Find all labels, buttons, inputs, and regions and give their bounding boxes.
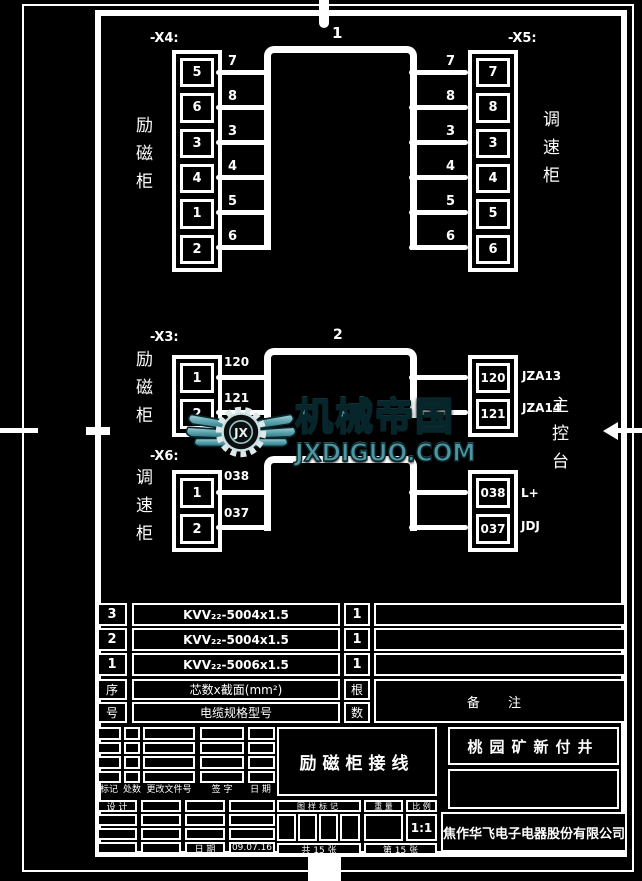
terminal-tag: JZA14 xyxy=(522,402,561,414)
center-mark-right-outer xyxy=(616,428,642,433)
signature-cell xyxy=(229,828,275,840)
wire-stub xyxy=(409,245,468,250)
signature-cell xyxy=(97,842,137,854)
signature-cell xyxy=(141,800,181,812)
table-header-spec: 芯数x截面(mm²) xyxy=(132,679,340,700)
mark-cell xyxy=(340,814,360,841)
revision-cell xyxy=(248,771,275,784)
console-bottom-terminal-block: 038 037 xyxy=(468,470,518,552)
table-cell-remark xyxy=(374,653,626,676)
scale-header: 比 例 xyxy=(406,800,437,812)
table-cell-spec: KVV₂₂-5006x1.5 xyxy=(132,653,340,676)
wire-number: 3 xyxy=(446,125,455,138)
table-header-qty-top: 根 xyxy=(344,679,370,700)
sheet-number: 第 15 张 xyxy=(364,843,437,855)
wire-stub xyxy=(216,375,268,380)
revision-cell xyxy=(143,742,195,755)
revision-label-count: 处数 xyxy=(121,786,143,795)
wire-number: 8 xyxy=(228,90,237,103)
wire-stub xyxy=(216,210,268,215)
wire-number: 8 xyxy=(446,90,455,103)
wire-stub xyxy=(216,140,268,145)
x6-terminal-block: 1 2 xyxy=(172,470,222,552)
right-cabinet-label: 调速柜 xyxy=(540,110,557,194)
center-mark-left-inner xyxy=(86,427,110,435)
table-header-serial-top: 序 xyxy=(97,679,127,700)
watermark-brand-text: 机械帝国 xyxy=(295,398,455,436)
x4-terminal-block: 5 6 3 4 1 2 xyxy=(172,50,222,272)
wire-number: 037 xyxy=(224,507,249,519)
table-cell-qty: 1 xyxy=(344,653,370,676)
signature-cell xyxy=(141,828,181,840)
revision-cell xyxy=(143,727,195,740)
table-cell-qty: 1 xyxy=(344,603,370,626)
signature-cell xyxy=(185,800,225,812)
revision-column xyxy=(143,727,195,783)
revision-cell xyxy=(97,727,121,740)
wire-stub xyxy=(216,175,268,180)
signature-cell-design: 设 计 xyxy=(97,800,137,812)
x5-terminal-label: -X5: xyxy=(508,32,537,45)
wire-stub xyxy=(216,525,268,530)
terminal-cell: 1 xyxy=(180,199,214,228)
x3-terminal-label: -X3: xyxy=(150,331,179,344)
terminal-tag: L+ xyxy=(521,487,539,499)
cable-bundle-1 xyxy=(264,46,417,250)
wire-stub xyxy=(216,105,268,110)
table-cell-spec: KVV₂₂-5004x1.5 xyxy=(132,628,340,651)
revision-cell xyxy=(124,771,140,784)
terminal-cell: 2 xyxy=(180,514,214,544)
revision-column xyxy=(97,727,121,783)
drawing-number-cell xyxy=(448,769,619,809)
wire-stub xyxy=(409,105,468,110)
cable-1-number: 1 xyxy=(332,26,342,41)
table-cell-no: 2 xyxy=(97,628,127,651)
revision-cell xyxy=(200,756,244,769)
revision-label-file: 更改文件号 xyxy=(141,786,197,795)
x3-cabinet-label: 励磁柜 xyxy=(133,350,150,434)
revision-cell xyxy=(97,756,121,769)
wire-number: 120 xyxy=(224,356,249,368)
revision-column xyxy=(124,727,140,783)
terminal-cell: 038 xyxy=(476,478,510,508)
signature-cell-date-value: 09.07.16 xyxy=(229,842,275,854)
revision-cell xyxy=(248,742,275,755)
sheets-total: 共 15 张 xyxy=(277,843,361,855)
weight-cell xyxy=(364,814,403,841)
center-mark-left-outer xyxy=(0,428,38,433)
wire-number: 7 xyxy=(228,55,237,68)
wire-stub xyxy=(409,140,468,145)
terminal-cell: 6 xyxy=(476,235,510,264)
wire-number: 4 xyxy=(228,160,237,173)
terminal-cell: 8 xyxy=(476,93,510,122)
terminal-tag: JZA13 xyxy=(522,370,561,382)
wire-stub xyxy=(409,525,468,530)
wire-stub xyxy=(409,70,468,75)
center-mark-bottom xyxy=(308,855,341,881)
wire-stub xyxy=(216,245,268,250)
revision-cell xyxy=(200,727,244,740)
revision-label-mark: 标记 xyxy=(95,786,123,795)
center-mark-top xyxy=(319,0,329,28)
terminal-cell: 5 xyxy=(180,58,214,87)
mark-cell xyxy=(298,814,317,841)
wire-number: 6 xyxy=(228,230,237,243)
wire-stub xyxy=(409,175,468,180)
watermark: JX 机械帝国 JXDIGUO.COM xyxy=(185,392,477,476)
wire-stub xyxy=(409,210,468,215)
terminal-cell: 4 xyxy=(180,164,214,193)
wire-number: 4 xyxy=(446,160,455,173)
table-header-qty-bottom: 数 xyxy=(344,702,370,723)
x5-terminal-block: 7 8 3 4 5 6 xyxy=(468,50,518,272)
terminal-cell: 1 xyxy=(180,478,214,508)
mark-cell xyxy=(319,814,338,841)
table-cell-remark xyxy=(374,603,626,626)
table-cell-spec: KVV₂₂-5004x1.5 xyxy=(132,603,340,626)
terminal-cell: 037 xyxy=(476,514,510,544)
wire-number: 7 xyxy=(446,55,455,68)
signature-cell-date-label: 日 期 xyxy=(185,842,225,854)
x6-terminal-label: -X6: xyxy=(150,450,179,463)
x4-terminal-label: -X4: xyxy=(150,32,179,45)
wire-stub xyxy=(409,490,468,495)
signature-cell xyxy=(141,814,181,826)
revision-cell xyxy=(143,756,195,769)
company-name: 焦作华飞电子电器股份有限公司 xyxy=(441,812,627,852)
signature-cell xyxy=(141,842,181,854)
terminal-cell: 121 xyxy=(476,399,510,429)
revision-label-sign: 签 字 xyxy=(198,786,246,795)
terminal-cell: 120 xyxy=(476,363,510,393)
wire-number: 5 xyxy=(228,195,237,208)
scale-value: 1:1 xyxy=(406,814,437,841)
winged-gear-logo: JX xyxy=(185,392,297,472)
watermark-domain-text: JXDIGUO.COM xyxy=(295,440,476,465)
signature-cell xyxy=(229,814,275,826)
project-name: 桃园矿新付井 xyxy=(448,727,619,765)
terminal-cell: 3 xyxy=(180,129,214,158)
revision-cell xyxy=(248,727,275,740)
table-header-model: 电缆规格型号 xyxy=(132,702,340,723)
terminal-cell: 1 xyxy=(180,363,214,393)
revision-cell xyxy=(97,742,121,755)
revision-cell xyxy=(124,742,140,755)
table-cell-qty: 1 xyxy=(344,628,370,651)
x6-cabinet-label: 调速柜 xyxy=(133,468,150,552)
revision-label-date: 日 期 xyxy=(244,786,277,795)
terminal-cell: 5 xyxy=(476,199,510,228)
table-header-serial-bottom: 号 xyxy=(97,702,127,723)
wire-stub xyxy=(409,375,468,380)
terminal-cell: 2 xyxy=(180,235,214,264)
table-cell-remark xyxy=(374,628,626,651)
revision-column xyxy=(248,727,275,783)
signature-cell xyxy=(97,828,137,840)
revision-column xyxy=(200,727,244,783)
drawing-title: 励磁柜接线 xyxy=(277,727,437,796)
wire-stub xyxy=(216,70,268,75)
table-cell-no: 1 xyxy=(97,653,127,676)
signature-cell xyxy=(229,800,275,812)
signature-cell xyxy=(185,828,225,840)
terminal-cell: 3 xyxy=(476,129,510,158)
left-cabinet-label: 励磁柜 xyxy=(133,116,150,200)
table-header-remark: 备 注 xyxy=(374,679,626,723)
revision-cell xyxy=(200,742,244,755)
revision-cell xyxy=(124,727,140,740)
revision-cell xyxy=(248,756,275,769)
revision-cell xyxy=(143,771,195,784)
revision-cell xyxy=(124,756,140,769)
drawing-sheet: -X4: -X5: 励磁柜 调速柜 1 5 6 3 4 1 2 7 8 3 4 … xyxy=(0,0,642,881)
revision-cell xyxy=(97,771,121,784)
cable-2-number: 2 xyxy=(333,328,343,342)
signature-cell xyxy=(185,814,225,826)
terminal-cell: 7 xyxy=(476,58,510,87)
terminal-cell: 4 xyxy=(476,164,510,193)
mark-cell xyxy=(277,814,296,841)
revision-cell xyxy=(200,771,244,784)
terminal-cell: 6 xyxy=(180,93,214,122)
mark-header: 图样标记 xyxy=(277,800,361,812)
terminal-tag: JDJ xyxy=(521,520,540,532)
wire-stub xyxy=(216,490,268,495)
signature-cell xyxy=(97,814,137,826)
svg-text:JX: JX xyxy=(233,426,248,440)
table-cell-no: 3 xyxy=(97,603,127,626)
wire-number: 5 xyxy=(446,195,455,208)
wire-number: 3 xyxy=(228,125,237,138)
weight-header: 重 量 xyxy=(364,800,403,812)
wire-number: 6 xyxy=(446,230,455,243)
